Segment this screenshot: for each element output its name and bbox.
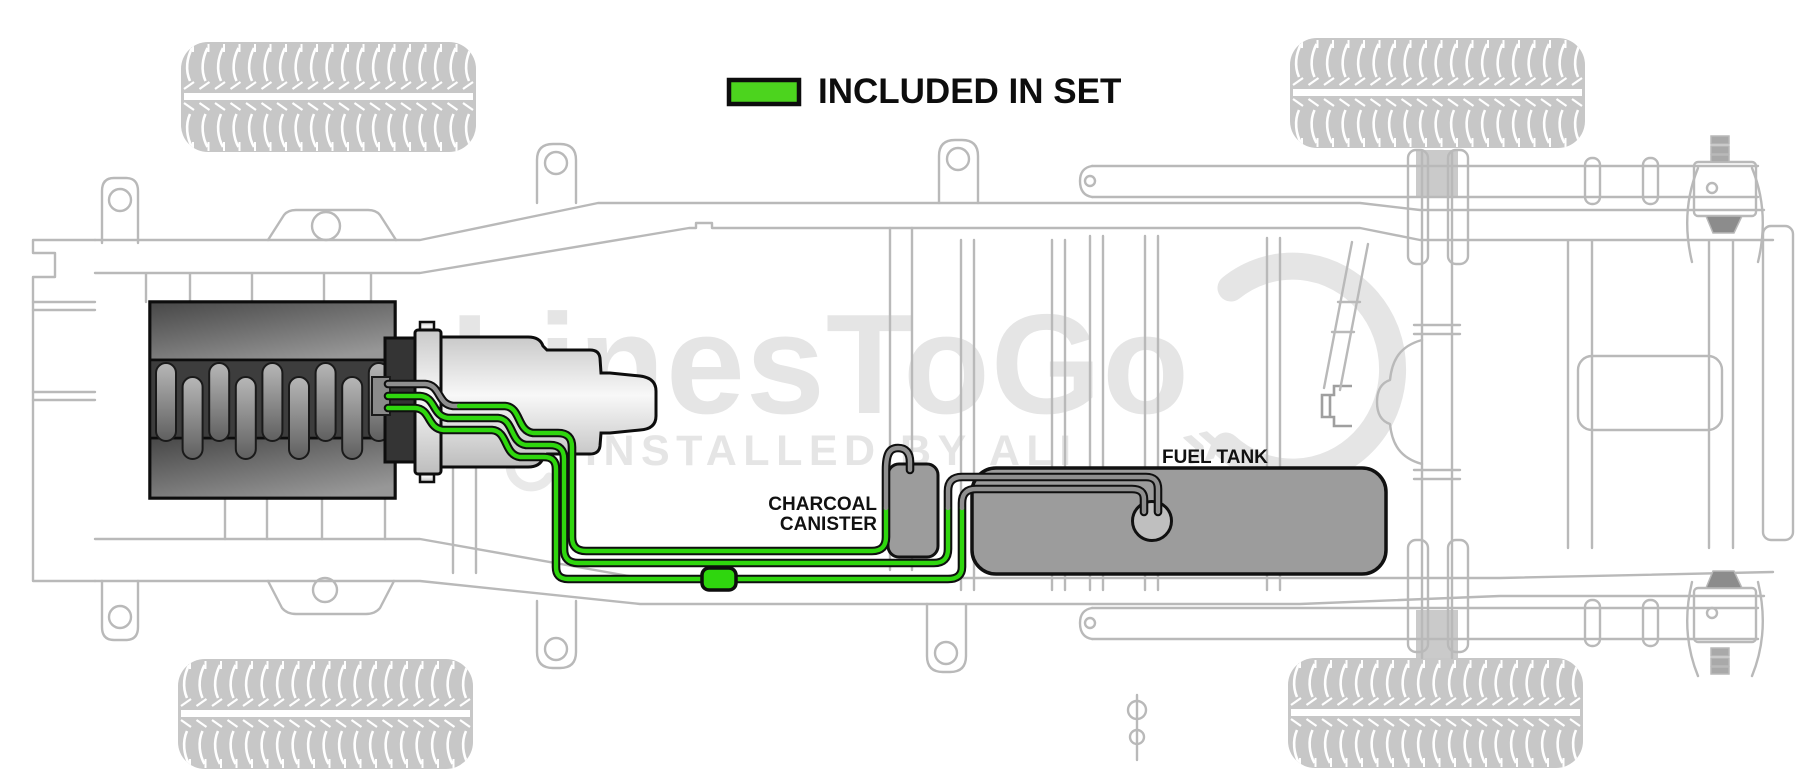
pinion-yoke — [1322, 386, 1352, 426]
rear-bumper — [1763, 226, 1793, 540]
front-tab-bottom-hole — [109, 606, 131, 628]
engine-block — [150, 302, 425, 498]
hanger-bolt — [1711, 146, 1729, 154]
front-arch-top-hole — [312, 212, 340, 240]
fuel-tank — [972, 468, 1386, 574]
fuel-tank-label: FUEL TANK — [1162, 447, 1268, 468]
charcoal-canister-label-line1: CHARCOAL — [768, 494, 877, 515]
frame-rail-top-outer — [95, 203, 1764, 240]
charcoal-canister-label-line2: CANISTER — [780, 514, 877, 535]
cab-mount-hole — [545, 638, 567, 660]
legend: INCLUDED IN SET — [729, 72, 1121, 111]
leaf-spring-eye-hole — [1085, 176, 1095, 186]
leaf-spring-eye-hole — [1085, 618, 1095, 628]
frame-rail-bottom-outer — [95, 581, 1764, 604]
legend-label: INCLUDED IN SET — [818, 72, 1121, 111]
cab-mount-tab-top-2 — [939, 140, 978, 203]
truck-fuel-line-diagram: LinesToGo INSTALLED BY ALI » — [0, 0, 1800, 784]
legend-swatch — [729, 80, 799, 104]
diagram-canvas: LinesToGo INSTALLED BY ALI » — [0, 0, 1800, 784]
tire-rear-left — [1290, 38, 1585, 148]
spare-tire-winch-box — [1578, 356, 1722, 430]
cab-mount-hole — [947, 148, 969, 170]
cab-mount-tab-bottom-2 — [927, 604, 966, 672]
hanger-bolt — [1711, 648, 1729, 656]
front-tab-top-hole — [109, 189, 131, 211]
tire-rear-right — [1288, 658, 1583, 768]
spring-hanger-plate — [1694, 162, 1756, 216]
hanger-shade — [1706, 216, 1742, 233]
fuel-pump-module — [1133, 502, 1172, 541]
front-crossmember — [33, 240, 95, 581]
inline-connector — [702, 568, 736, 590]
charcoal-canister — [888, 464, 938, 557]
cab-mount-hole — [935, 642, 957, 664]
hanger-bolt — [1711, 155, 1729, 162]
cab-mount-tab-bottom-1 — [537, 601, 576, 668]
spring-hanger-hole — [1707, 183, 1717, 193]
frame-rail-top-inner — [95, 223, 1773, 273]
tire-front-right — [178, 659, 473, 769]
hanger-bolt — [1711, 667, 1729, 674]
front-crossmember-ribs — [33, 302, 95, 400]
tire-front-left — [181, 42, 476, 152]
hanger-bolt — [1711, 136, 1729, 144]
front-arch-bottom — [268, 581, 394, 614]
cab-mount-hole — [545, 152, 567, 174]
hanger-bolt — [1711, 658, 1729, 666]
spring-hanger-hole — [1707, 608, 1717, 618]
valve-cover-left — [150, 302, 395, 360]
rear-crossmembers — [1568, 241, 1733, 548]
watermark-swirl-icon — [1226, 266, 1393, 472]
front-tab-bottom — [102, 581, 138, 640]
